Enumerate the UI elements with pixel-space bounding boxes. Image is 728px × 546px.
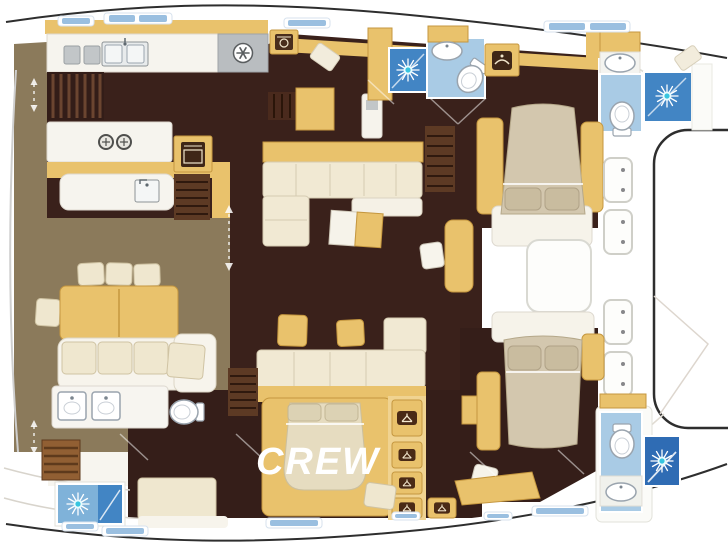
bench-base — [138, 516, 228, 528]
window-label — [544, 21, 630, 32]
cockpit-chair — [134, 264, 161, 287]
pillow — [288, 404, 321, 421]
pillow — [545, 188, 579, 210]
sofa-cushion — [62, 342, 96, 374]
sink-icon — [58, 392, 86, 420]
forward-cabin-upper — [477, 104, 603, 246]
crew-cabin: CREW — [256, 396, 456, 520]
appliance-square — [84, 46, 100, 64]
deck-skylight — [527, 240, 591, 312]
sink-icon — [606, 483, 636, 501]
bath-cabinet — [600, 32, 640, 54]
toilet-icon — [170, 400, 204, 424]
shower-stall — [55, 482, 125, 526]
bath-cabinet — [428, 26, 468, 42]
desk-basin — [366, 100, 378, 110]
sink-icon — [605, 54, 635, 72]
deck-plan-canvas: CREW — [0, 0, 728, 546]
sofa-cushion — [134, 342, 168, 374]
saloon-sideboard — [263, 142, 423, 162]
burner-stove-icon — [99, 135, 113, 149]
bed-flank-wall — [477, 118, 503, 214]
oven-icon — [181, 142, 205, 167]
bow-platform — [654, 130, 728, 428]
window-label — [62, 522, 98, 531]
bath-wall — [600, 394, 646, 408]
window-label — [266, 518, 322, 528]
toilet-icon — [610, 102, 634, 136]
bath-side-deck — [692, 64, 712, 130]
window-label — [392, 512, 420, 520]
bed-flank-wall — [582, 334, 604, 380]
nav-console — [445, 220, 473, 292]
sink-icon — [432, 42, 462, 60]
appliance-icon — [492, 51, 512, 70]
cabin-stairs-lower — [228, 368, 258, 416]
hanger-wardrobe-icon — [397, 411, 417, 425]
cabin-stairs-upper — [425, 126, 455, 192]
hatch-icon — [604, 158, 632, 202]
cockpit-chair — [35, 298, 61, 327]
hatch-icon — [604, 352, 632, 396]
window-label — [484, 512, 512, 520]
stern-ladder — [42, 440, 80, 480]
sofa-cushion — [98, 342, 132, 374]
island-sink — [135, 180, 159, 202]
pillow — [325, 404, 358, 421]
double-sink — [102, 38, 148, 66]
pillow — [508, 346, 541, 370]
hanger-wardrobe-icon — [434, 502, 450, 513]
window-label — [284, 18, 330, 28]
cockpit-chair — [106, 263, 133, 286]
sink-icon — [92, 392, 120, 420]
toilet-icon — [610, 424, 634, 458]
galley-stairs — [174, 174, 210, 220]
crew-bench — [138, 478, 216, 520]
cockpit-chair — [77, 262, 104, 285]
appliance-square — [64, 46, 80, 64]
hatch-icon — [604, 300, 632, 344]
footstool — [277, 315, 307, 347]
burner-stove-icon — [117, 135, 131, 149]
pillow — [505, 188, 541, 210]
nav-stool — [419, 242, 444, 270]
snowflake-fridge-icon — [234, 44, 253, 63]
window-label — [58, 16, 94, 26]
hatch-icon — [604, 210, 632, 254]
window-label — [102, 526, 148, 536]
galley-cabinet-slats — [47, 72, 104, 120]
sofa-cushion — [167, 342, 206, 379]
coffee-table — [329, 210, 383, 248]
crew-label: CREW — [256, 441, 381, 483]
window-label — [104, 13, 172, 24]
deck-plan: CREW — [0, 0, 728, 546]
hanger-wardrobe-icon — [399, 449, 416, 461]
bed-flank-wall — [581, 122, 603, 212]
cabin-wall — [296, 88, 334, 130]
hanger-wardrobe-icon — [399, 477, 415, 488]
companionway-steps — [268, 92, 300, 120]
footstool — [336, 319, 364, 346]
bed-flank-wall — [477, 372, 500, 450]
seat-cushion — [363, 482, 396, 510]
pillow — [545, 346, 578, 370]
washer-icon — [275, 34, 293, 50]
window-label — [532, 506, 588, 516]
